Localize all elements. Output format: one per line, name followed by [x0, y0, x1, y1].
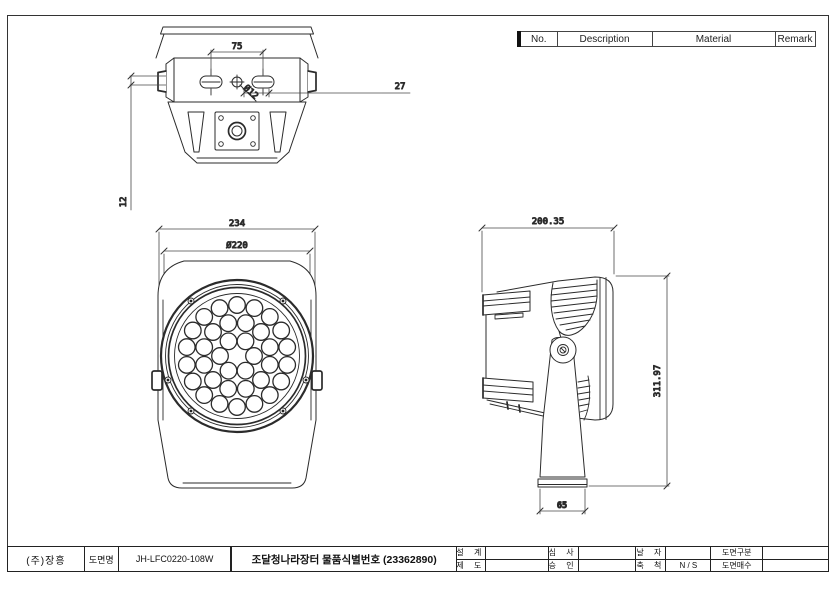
dim-plate-thickness: 12 [119, 197, 129, 208]
led-lens [220, 315, 237, 332]
led-lens [220, 333, 237, 350]
led-lens [238, 315, 255, 332]
rear-bracket [483, 291, 533, 402]
dim-depth: 200.35 [532, 217, 565, 227]
item-identification: 조달청나라장터 물품식별번호 (23362890) [230, 547, 455, 571]
review-approve-values [578, 547, 636, 571]
date-scale-labels: 날 자 축 척 [635, 547, 665, 571]
dim-overall-width: 234 [229, 219, 245, 229]
draft-label: 제 도 [457, 560, 485, 572]
review-approve-labels: 심 사 승 인 [548, 547, 578, 571]
led-lens [262, 357, 279, 374]
scale-value: N / S [666, 560, 710, 572]
dim-slot-spacing: 75 [232, 42, 243, 52]
spec-column-header: No. [519, 32, 557, 47]
led-lens [229, 297, 246, 314]
led-lens [273, 373, 290, 390]
led-lens [262, 339, 279, 356]
sheets-value [763, 560, 828, 572]
led-lens [211, 300, 228, 317]
approve-label: 승 인 [549, 560, 578, 572]
led-lens [279, 357, 296, 374]
scale-label: 축 척 [636, 560, 665, 572]
side-view: 200.35 311.97 65 [479, 217, 670, 514]
led-lens [273, 322, 290, 339]
side-tab-right [312, 371, 322, 390]
spec-table-header: No.DescriptionMaterialRemark [519, 32, 815, 47]
led-lens [185, 373, 202, 390]
drawing-number: JH-LFC0220-108W [118, 547, 231, 571]
led-lens [196, 357, 213, 374]
led-lens [246, 348, 263, 365]
led-lens [262, 309, 279, 326]
led-lens [279, 339, 296, 356]
spec-column-header: Description [557, 32, 652, 47]
drawing-sheet: 75 Ø12 27 12 234 Ø220 [0, 0, 835, 591]
review-value [579, 547, 636, 560]
design-draft-values [485, 547, 548, 571]
led-lens [211, 396, 228, 413]
base-foot [538, 479, 587, 487]
spec-column-header: Remark [775, 32, 815, 47]
category-sheets-labels: 도면구분 도면매수 [710, 547, 762, 571]
category-value [763, 547, 828, 560]
approve-value [579, 560, 636, 572]
cable-gland-plate [215, 112, 259, 150]
led-lens [179, 357, 196, 374]
led-lens [262, 387, 279, 404]
led-lens [196, 309, 213, 326]
spec-column-header: Material [652, 32, 775, 47]
led-lens [238, 381, 255, 398]
date-scale-values: N / S [665, 547, 710, 571]
design-label: 설 계 [457, 547, 485, 560]
technical-drawing: 75 Ø12 27 12 234 Ø220 [0, 0, 835, 591]
led-lens [220, 381, 237, 398]
draft-value [486, 560, 548, 572]
title-block: (주)장흥 도면명 JH-LFC0220-108W 조달청나라장터 물품식별번호… [7, 546, 829, 572]
led-lens [253, 372, 270, 389]
front-view: 234 Ø220 [152, 219, 322, 488]
design-value [486, 547, 548, 560]
review-label: 심 사 [549, 547, 578, 560]
side-tab-left [152, 371, 162, 390]
led-lens [237, 362, 254, 379]
drawing-name-label: 도면명 [84, 547, 118, 571]
led-lens [220, 362, 237, 379]
led-lens [179, 339, 196, 356]
category-label: 도면구분 [711, 547, 762, 560]
dim-height: 311.97 [653, 365, 663, 398]
category-sheets-values [762, 547, 828, 571]
design-draft-labels: 설 계 제 도 [456, 547, 485, 571]
date-label: 날 자 [636, 547, 665, 560]
top-view: 75 Ø12 27 12 [119, 27, 410, 210]
led-lens [205, 324, 222, 341]
led-lens [253, 324, 270, 341]
sheets-label: 도면매수 [711, 560, 762, 572]
dim-base-width: 65 [557, 501, 567, 511]
led-lens [212, 348, 229, 365]
led-lens [246, 300, 263, 317]
spec-table: No.DescriptionMaterialRemark [517, 31, 816, 47]
led-lens [196, 387, 213, 404]
company-name: (주)장흥 [8, 547, 84, 571]
led-lens [229, 399, 246, 416]
dim-lens-diameter: Ø220 [226, 240, 248, 251]
led-lens [185, 322, 202, 339]
led-lens [237, 333, 254, 350]
led-lens [246, 396, 263, 413]
date-value [666, 547, 710, 560]
dim-offset: 27 [395, 82, 406, 92]
led-lens [196, 339, 213, 356]
led-lens [205, 372, 222, 389]
